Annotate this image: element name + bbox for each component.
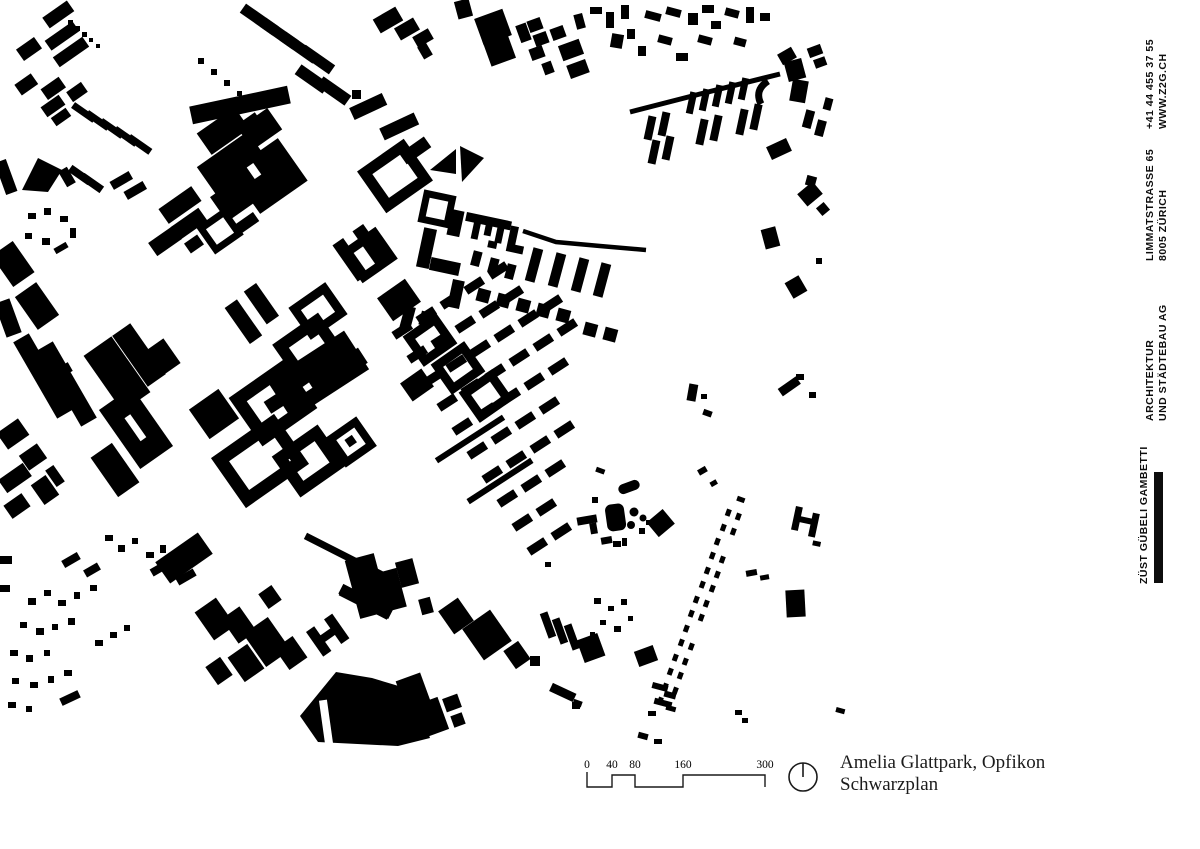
large-industrial-hall bbox=[300, 672, 430, 746]
map-central-band bbox=[0, 136, 507, 619]
scale-label-0: 0 bbox=[584, 759, 590, 771]
map-dotted-avenue bbox=[637, 466, 845, 744]
map-industrial-bottom bbox=[155, 532, 658, 746]
project-title: Amelia Glattpark, Opfikon bbox=[840, 752, 1045, 774]
map-row-housing-field bbox=[391, 261, 578, 555]
scale-label-160: 160 bbox=[674, 759, 692, 771]
schwarzplan-sheet: 0 40 80 160 300 Amelia Glattpark, Opfiko… bbox=[0, 0, 1200, 849]
lone-building bbox=[785, 589, 805, 617]
scale-bar-labels: 0 40 80 160 300 bbox=[584, 759, 774, 771]
schwarzplan-map: 0 40 80 160 300 bbox=[0, 0, 1200, 849]
firm-contact: +41 44 455 37 55 WWW.Z2G.CH bbox=[1144, 39, 1170, 129]
h-shaped-building bbox=[306, 614, 349, 657]
firm-website: WWW.Z2G.CH bbox=[1157, 39, 1170, 129]
map-scattered-right bbox=[686, 138, 830, 547]
highlighted-building-amelia bbox=[446, 209, 528, 254]
firm-name: ZÜST GÜBELI GAMBETTI bbox=[1138, 446, 1151, 584]
firm-street: LIMMATSTRASSE 65 bbox=[1144, 149, 1157, 261]
courtyard-block bbox=[365, 146, 426, 205]
scale-label-300: 300 bbox=[756, 759, 774, 771]
firm-address: LIMMATSTRASSE 65 8005 ZÜRICH bbox=[1144, 149, 1170, 261]
scale-bar bbox=[587, 772, 765, 787]
map-project-surroundings bbox=[416, 194, 646, 309]
scale-label-80: 80 bbox=[629, 759, 641, 771]
firm-discipline-line1: ARCHITEKTUR bbox=[1144, 304, 1157, 421]
map-triangle-buildings bbox=[430, 146, 484, 182]
road-line-top-right bbox=[630, 74, 780, 112]
firm-phone: +41 44 455 37 55 bbox=[1144, 39, 1157, 129]
firm-name-text: ZÜST GÜBELI GAMBETTI bbox=[1138, 446, 1151, 584]
map-cluster-top-right bbox=[630, 44, 833, 165]
map-small-houses-bottom-left bbox=[0, 535, 197, 712]
courtyard-block bbox=[280, 433, 338, 489]
map-tank-cluster bbox=[545, 467, 675, 708]
courtyard-block bbox=[238, 369, 309, 438]
firm-discipline: ARCHITEKTUR UND STÄDTEBAU AG bbox=[1144, 304, 1170, 421]
firm-logo-bar bbox=[1154, 472, 1163, 583]
drawing-title: Amelia Glattpark, Opfikon Schwarzplan bbox=[840, 752, 1045, 796]
firm-discipline-line2: UND STÄDTEBAU AG bbox=[1157, 304, 1170, 421]
north-icon bbox=[789, 763, 817, 791]
drawing-type: Schwarzplan bbox=[840, 774, 1045, 796]
scale-label-40: 40 bbox=[606, 759, 618, 771]
map-cluster-top-left bbox=[0, 0, 291, 256]
map-large-block-mass bbox=[197, 108, 308, 250]
firm-city: 8005 ZÜRICH bbox=[1157, 149, 1170, 261]
map-scattered-houses-top bbox=[573, 5, 770, 61]
courtyard-block bbox=[220, 423, 300, 499]
map-cluster-top-center bbox=[198, 0, 590, 140]
courtyard-block bbox=[281, 321, 340, 379]
legend-graphics: 0 40 80 160 300 bbox=[584, 759, 817, 791]
road-line-project bbox=[523, 231, 646, 250]
map-development-rows bbox=[399, 247, 618, 342]
